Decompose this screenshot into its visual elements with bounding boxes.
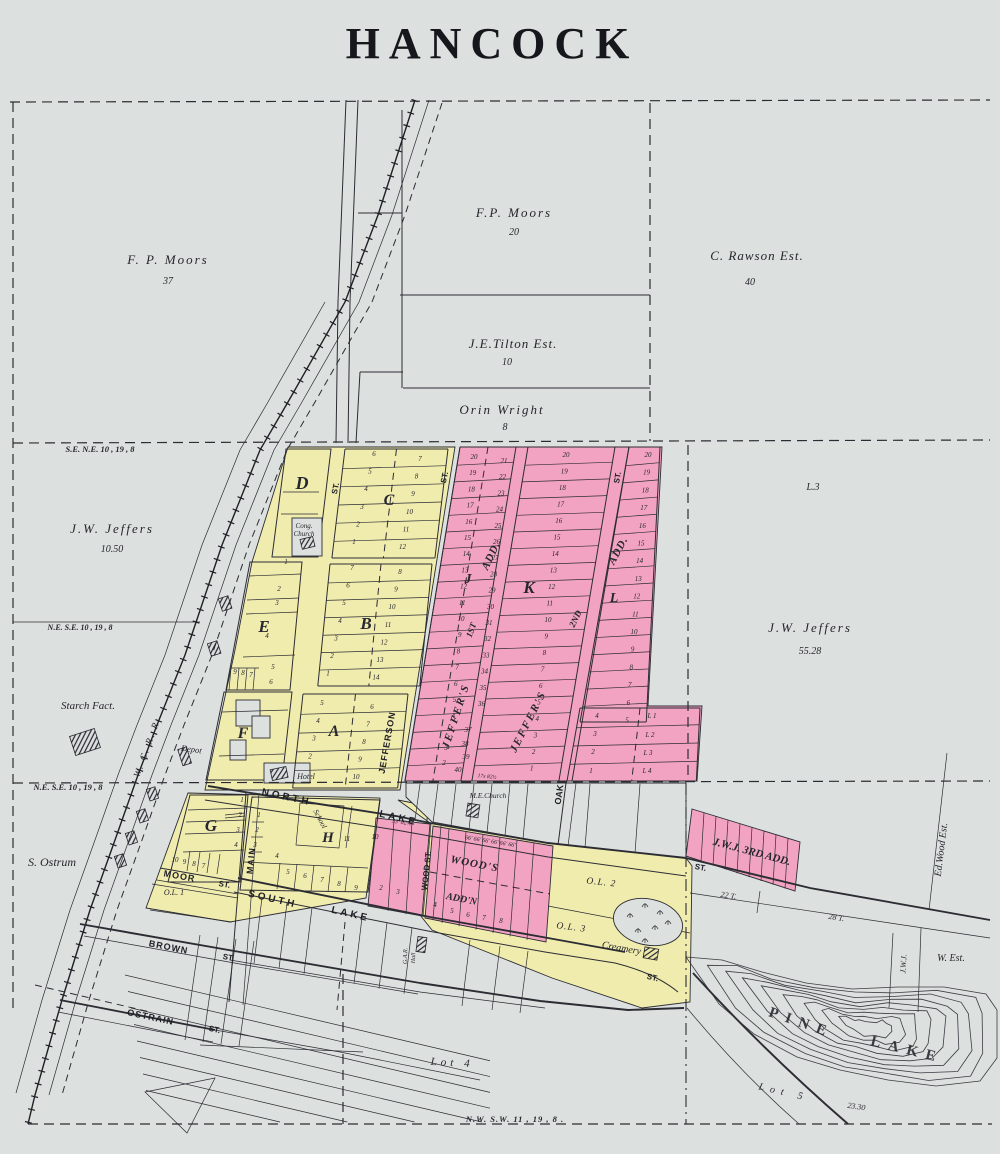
creamery-building	[643, 947, 659, 960]
map-label: S.E. N.E. 10 , 19 , 8	[66, 444, 136, 454]
map-label: 10	[631, 628, 639, 636]
map-label: 38	[461, 740, 470, 748]
map-label: 3	[395, 888, 400, 896]
map-label: 19	[643, 469, 651, 477]
map-label: 5	[368, 468, 372, 476]
map-label: 34	[480, 668, 489, 676]
map-label: A	[328, 723, 340, 740]
map-label: 24	[496, 506, 504, 514]
map-label: 4	[316, 717, 320, 725]
map-label: 9	[631, 646, 635, 654]
map-label: 5	[342, 599, 346, 607]
map-label: N.E. S.E. 10 , 19 , 8	[47, 623, 113, 632]
map-label: Orin Wright	[459, 402, 544, 417]
map-label: 13	[550, 567, 558, 575]
map-label: 40	[745, 277, 755, 288]
map-label: 18	[468, 485, 476, 493]
map-label: 10	[458, 615, 466, 623]
map-label: 23	[498, 489, 506, 497]
map-label: 7	[350, 564, 354, 572]
map-label: S. Ostrum	[28, 855, 76, 869]
map-label: 7	[628, 681, 632, 689]
map-label: 15	[464, 534, 472, 542]
map-label: 9	[544, 633, 548, 641]
map-label: 2	[255, 826, 259, 834]
map-label: L 4	[641, 767, 652, 775]
map-label: 2	[277, 585, 281, 593]
map-label: Hotel	[296, 772, 316, 781]
map-label: 3	[274, 599, 279, 607]
map-label: 2	[356, 520, 360, 528]
map-label: 7	[455, 664, 459, 672]
map-label: 7	[482, 914, 486, 922]
map-label: 7	[202, 862, 206, 870]
map-label: 6	[627, 699, 631, 707]
map-label: 21	[501, 457, 508, 465]
map-label: 8	[457, 647, 461, 655]
map-label: 7	[366, 721, 370, 729]
map-label: 12	[399, 543, 407, 551]
map-label: 3	[311, 735, 316, 743]
map-label: 2	[238, 811, 242, 819]
map-label: 8	[503, 422, 508, 433]
map-label: 10	[372, 833, 380, 841]
map-label: 3	[333, 634, 338, 642]
map-label: 17	[557, 501, 565, 509]
map-label: 55.28	[799, 646, 822, 657]
map-label: M.E.Church	[469, 791, 507, 800]
map-label: 10	[353, 773, 361, 781]
map-label: 1	[326, 670, 330, 678]
map-label: 11	[459, 599, 465, 607]
map-label: 10	[502, 357, 512, 368]
map-label: 17	[640, 504, 648, 512]
map-label: 4	[338, 617, 342, 625]
map-label: 10	[172, 856, 180, 864]
map-label: 5	[450, 907, 454, 915]
map-label: 19	[469, 469, 477, 477]
map-label: 15	[554, 534, 562, 542]
map-label: 4	[595, 712, 599, 720]
map-label: 14	[552, 550, 560, 558]
map-label: 35	[479, 684, 488, 692]
map-label: 18	[642, 486, 650, 494]
map-label: E	[257, 617, 269, 636]
map-label: 29	[489, 587, 497, 595]
map-label: 8	[362, 738, 366, 746]
map-label: 40	[455, 766, 463, 774]
map-label: 7	[249, 671, 253, 679]
map-label: Lot 4	[429, 1056, 474, 1070]
map-label: 39	[462, 753, 471, 761]
map-label: 8	[543, 649, 547, 657]
map-label: 4	[433, 901, 437, 909]
map-label: J.W. Jeffers	[70, 521, 154, 536]
map-label: L.3	[805, 482, 819, 493]
map-label: 11	[547, 600, 553, 608]
map-label: 10	[406, 508, 414, 516]
map-label: W. Est.	[937, 953, 965, 964]
map-label: 33	[482, 651, 491, 659]
map-label: 37	[162, 276, 174, 287]
map-label: 5	[271, 663, 275, 671]
map-label: 8	[415, 473, 419, 481]
map-label: 6	[454, 680, 458, 688]
map-label: 12	[548, 583, 556, 591]
map-label: 7	[320, 876, 324, 884]
map-label: 5	[625, 717, 629, 725]
map-label: J.W.J.	[899, 954, 909, 973]
map-label: 3	[359, 503, 364, 511]
me-church-building	[466, 803, 480, 818]
map-label: N.E. S.E. 10 , 19 , 8	[33, 782, 104, 792]
map-label: 30	[486, 603, 495, 611]
map-label: 1	[284, 558, 288, 566]
map-label: 3	[235, 826, 240, 834]
map-label: Church	[294, 530, 315, 538]
map-label: 2	[532, 748, 536, 756]
map-label: Starch Fact.	[61, 700, 115, 712]
map-label: 14	[636, 557, 644, 565]
map-label: 16	[639, 522, 647, 530]
map-label: 8	[192, 860, 196, 868]
map-label: 3	[592, 730, 597, 738]
map-label: 9	[233, 668, 237, 676]
map-label: 22	[499, 473, 507, 481]
map-label: 20	[471, 453, 479, 461]
map-label: 15	[638, 540, 646, 548]
map-label: 11	[403, 525, 409, 533]
map-label: 14	[463, 550, 471, 558]
map-label: 6	[303, 872, 307, 880]
map-label: 36	[477, 700, 486, 708]
map-label: 9	[458, 631, 462, 639]
map-label: 31	[485, 619, 493, 627]
map-label: Cong.	[296, 522, 313, 530]
map-label: 6	[346, 582, 350, 590]
map-label: 6	[269, 678, 273, 686]
map-label: 8	[398, 568, 402, 576]
map-label: H	[321, 830, 335, 846]
map-label: 10	[389, 603, 397, 611]
map-label: 25	[495, 522, 503, 530]
map-label: 9	[183, 858, 187, 866]
map-label: 32	[483, 635, 492, 643]
map-label: 18	[559, 484, 567, 492]
map-label: 10.50	[101, 544, 124, 555]
map-label: 19	[561, 468, 569, 476]
map-label: 11	[632, 610, 638, 618]
map-label: 8	[241, 669, 245, 677]
map-label: J.W. Jeffers	[768, 620, 852, 635]
map-label: 20	[645, 451, 653, 459]
plat-map-page: 6543217891011127654321891011121314543267…	[0, 0, 1000, 1154]
map-label: 17	[467, 502, 475, 510]
map-label: 2	[442, 759, 446, 767]
map-label: 6	[372, 450, 376, 458]
map-label: 16	[465, 518, 473, 526]
map-label: F	[237, 725, 249, 742]
map-label: 11	[344, 835, 350, 843]
map-label: 14	[373, 674, 381, 682]
map-label: 2	[330, 652, 334, 660]
map-label: 28	[490, 570, 498, 578]
map-label: 6	[466, 911, 470, 919]
map-label: 1	[589, 767, 593, 775]
map-label: 12	[381, 638, 389, 646]
map-label: 12	[633, 593, 641, 601]
map-label: 13	[635, 575, 643, 583]
map-label: 1	[240, 796, 244, 804]
map-label: 7	[418, 455, 422, 463]
map-label: G.A.R.	[403, 948, 410, 964]
gar-hall-building	[416, 937, 427, 953]
map-label: 7	[541, 666, 545, 674]
map-label: 10	[545, 616, 553, 624]
map-label: F. P. Moors	[126, 252, 208, 267]
map-label: 2	[308, 752, 312, 760]
map-label: 1	[257, 811, 261, 819]
map-label: K	[522, 578, 536, 597]
map-label: G	[205, 816, 218, 835]
map-label: 2	[379, 884, 383, 892]
map-label: 5	[320, 699, 324, 707]
map-label: 20	[509, 227, 519, 238]
map-label: HANCOCK	[346, 19, 639, 68]
map-label: O.L. 1	[164, 888, 184, 897]
map-label: 9	[394, 586, 398, 594]
map-label: C	[384, 492, 395, 509]
map-label: B	[359, 614, 371, 633]
map-label: 2	[591, 748, 595, 756]
map-label: 4	[234, 841, 238, 849]
map-label: D	[295, 473, 309, 493]
map-label: 16	[555, 517, 563, 525]
map-label: 4	[364, 485, 368, 493]
map-label: 9	[354, 884, 358, 892]
map-label: 4	[275, 852, 279, 860]
map-label: 8	[629, 663, 633, 671]
map-label: L	[609, 591, 619, 606]
map-label: L 1	[646, 712, 656, 720]
map-label: L 2	[644, 731, 655, 739]
map-label: C. Rawson Est.	[710, 248, 803, 263]
map-label: 11	[385, 621, 391, 629]
map-label: Hall	[411, 952, 417, 964]
map-label: 3	[533, 732, 538, 740]
map-label: 9	[411, 490, 415, 498]
map-label: 1	[352, 538, 356, 546]
map-label: 1	[530, 765, 534, 773]
map-label: 37	[464, 726, 473, 734]
map-label: J.E.Tilton Est.	[469, 336, 558, 351]
map-label: 13	[377, 656, 385, 664]
map-label: 5	[286, 868, 290, 876]
map-label: 20	[563, 451, 571, 459]
map-label: 8	[337, 880, 341, 888]
hancock-plat-map: 6543217891011127654321891011121314543267…	[0, 0, 1000, 1154]
map-label: 8	[499, 917, 503, 925]
map-label: 6	[539, 682, 543, 690]
map-label: N.W. S.W. 11 , 19 , 8 .	[465, 1114, 564, 1124]
map-label: 9	[358, 756, 362, 764]
map-label: 6	[370, 703, 374, 711]
map-label: L 3	[642, 749, 653, 757]
map-label: F.P. Moors	[475, 205, 552, 220]
map-label: J	[464, 572, 473, 587]
